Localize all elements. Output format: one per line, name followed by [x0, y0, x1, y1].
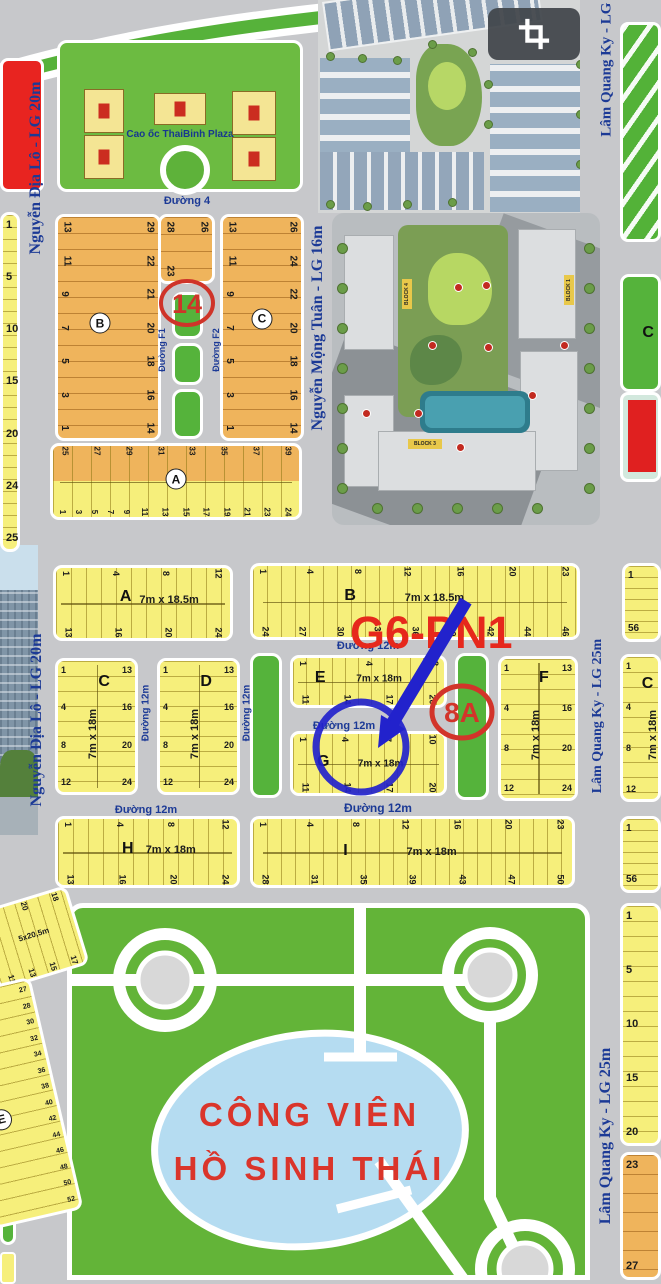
block-letter: C	[252, 308, 273, 329]
park-title-line1: CÔNG VIÊN	[127, 1096, 492, 1134]
lot-number: 20	[144, 322, 154, 333]
tree-icon	[337, 323, 348, 334]
block-letter: F	[539, 670, 549, 686]
tree-icon	[393, 56, 402, 65]
block-dims: 7m x 18m	[189, 709, 201, 759]
tree-icon	[584, 323, 595, 334]
lot-number: 36	[37, 1066, 46, 1075]
tree-icon	[428, 40, 437, 49]
block-g-row: 1471011141720G7m x 18m	[290, 731, 447, 796]
street-label-nguyen-mong-tuan: Nguyễn Mộng Tuân - LG 16m	[309, 226, 327, 431]
lot-number: 12	[626, 785, 636, 794]
lot-number: 22	[287, 288, 297, 299]
lot-number: 3	[74, 510, 82, 514]
lot-number: 1	[59, 425, 69, 431]
block-dims: 5x16,5m	[0, 1034, 1, 1067]
eco-park: CÔNG VIÊN HỒ SINH THÁI	[67, 903, 590, 1280]
lot-number: 4	[115, 822, 124, 827]
lot-number: 1	[504, 664, 509, 673]
lot-number: 13	[66, 874, 75, 884]
lot-number: 11	[300, 695, 309, 705]
tree-icon	[576, 160, 580, 169]
lot-number: 5	[224, 358, 234, 364]
lot-number: 7	[224, 325, 234, 331]
lot-number: 22	[144, 255, 154, 266]
lot-number: 18	[144, 355, 154, 366]
lot-number: 5	[59, 358, 69, 364]
lot-number: 44	[52, 1131, 61, 1140]
lot-number: 27	[298, 626, 307, 636]
map-marker-icon	[482, 281, 491, 290]
lot-number: 48	[59, 1163, 68, 1172]
lot-number: 33	[188, 447, 196, 456]
lot-number: 8	[351, 822, 360, 827]
block-rb-yellow: 15101520	[620, 903, 661, 1146]
street-label-duong-4: Đường 4	[164, 195, 210, 207]
lot-number: 10	[6, 324, 18, 335]
lot-number: 8	[504, 744, 509, 753]
tree-icon	[337, 483, 348, 494]
lot-number: 43	[457, 874, 466, 884]
lot-number: 4	[111, 571, 120, 576]
lot-number: 31	[310, 874, 319, 884]
block-b-upper-ext: 282326	[158, 214, 215, 284]
lot-number: 8	[163, 741, 168, 750]
lot-number: 32	[30, 1034, 39, 1043]
map-marker-icon	[428, 341, 437, 350]
lot-number: 20	[163, 627, 172, 637]
map-marker-icon	[362, 409, 371, 418]
lot-number: 10	[427, 734, 436, 744]
block-tag: BLOCK 4	[402, 279, 412, 309]
lot-number: 20	[427, 782, 436, 792]
plaza-building	[232, 137, 276, 181]
tree-icon	[326, 200, 335, 209]
lot-number: 12	[163, 778, 173, 787]
plaza-roundabout	[160, 145, 210, 195]
map-marker-icon	[414, 409, 423, 418]
tree-icon	[358, 54, 367, 63]
lot-number: 16	[122, 703, 132, 712]
block-letter: C	[642, 676, 654, 692]
lot-number: 12	[403, 566, 412, 576]
lot-number: 4	[504, 704, 509, 713]
aerial-photo-villas	[318, 0, 580, 213]
lot-number: 17	[385, 694, 394, 704]
lot-number: 16	[113, 627, 122, 637]
lot-number: 20	[626, 1127, 638, 1138]
tree-icon	[326, 52, 335, 61]
tree-icon	[403, 200, 412, 209]
tree-icon	[363, 202, 372, 211]
lot-number: 24	[213, 627, 222, 637]
lot-number: 3	[59, 392, 69, 398]
pale-block-red-building	[620, 392, 661, 482]
block-letter: A	[120, 589, 132, 605]
lot-number: 27	[18, 986, 27, 995]
lot-number: 16	[562, 704, 572, 713]
lot-number: 35	[220, 447, 228, 456]
tree-icon	[452, 503, 463, 514]
lot-number: 16	[452, 819, 461, 829]
block-letter: C	[642, 325, 654, 341]
lot-number: 24	[6, 481, 18, 492]
block-i-row: 1481216202328313539434750I7m x 18m	[250, 816, 575, 888]
green-block-chevron	[620, 22, 661, 242]
lot-number: 16	[287, 389, 297, 400]
tree-icon	[337, 243, 348, 254]
lot-number: 15	[181, 508, 189, 517]
lot-number: 40	[44, 1099, 53, 1108]
plaza-building	[232, 91, 276, 135]
apartment-building	[344, 235, 394, 350]
lot-number: 20	[224, 741, 234, 750]
block-dims: 7m x 18m	[530, 710, 542, 760]
lot-number: 14	[342, 782, 351, 792]
lot-number: 23	[263, 508, 271, 517]
lot-number: 50	[555, 874, 564, 884]
lot-number: 50	[63, 1179, 72, 1188]
lot-number: 14	[144, 422, 154, 433]
lot-number: 12	[504, 784, 514, 793]
lot-number: 13	[62, 221, 72, 232]
lot-number: 23	[626, 1160, 638, 1171]
lot-number: 37	[252, 447, 260, 456]
block-dims: 7m x 18m	[146, 844, 196, 856]
lot-number: 4	[305, 569, 314, 574]
lot-number: 13	[227, 221, 237, 232]
lot-number: 18	[49, 891, 59, 902]
lot-number: 13	[122, 666, 132, 675]
block-c-right: 14812C7m x 18m	[620, 654, 661, 802]
lot-number: 38	[41, 1082, 50, 1091]
block-f-row: 1481213162024F7m x 18m	[498, 656, 578, 801]
lot-number: 25	[60, 447, 68, 456]
block-dims: 5x20,5m	[17, 926, 50, 944]
street-label-nguyen-dia-lo-upper: Nguyễn Địa Lô - LG 20m	[27, 82, 45, 255]
lot-number: 12	[220, 819, 229, 829]
lot-number: 1	[6, 220, 12, 231]
lot-number: 20	[122, 741, 132, 750]
lot-number: 1	[626, 662, 631, 671]
street-label-lam-quang-ky-top: Lâm Quang Ky - LG 2	[599, 0, 616, 137]
lot-number: 16	[144, 389, 154, 400]
tree-icon	[372, 503, 383, 514]
lot-number: 5	[6, 272, 12, 283]
green-median	[172, 292, 203, 339]
street-label-lam-quang-ky-bottom: Lâm Quang Ky - LG 25m	[597, 1048, 615, 1224]
lot-number: 29	[124, 447, 132, 456]
tree-icon	[532, 503, 543, 514]
lot-number: 20	[18, 901, 28, 912]
lot-number: 4	[340, 737, 349, 742]
block-letter: B	[344, 588, 356, 604]
lot-number: 4	[163, 703, 168, 712]
lot-number: 24	[122, 778, 132, 787]
block-letter: H	[122, 841, 134, 857]
block-letter: E	[0, 1107, 14, 1132]
tree-icon	[584, 243, 595, 254]
park-plan	[72, 908, 585, 1275]
lot-number: 7	[383, 737, 392, 742]
lot-number: 8	[353, 569, 362, 574]
lot-number: 9	[224, 291, 234, 297]
tree-icon	[412, 503, 423, 514]
lot-number: 17	[69, 955, 79, 966]
lot-number: 39	[283, 447, 291, 456]
lot-number: 15	[48, 961, 58, 972]
lot-number: 1	[163, 666, 168, 675]
lot-number: 29	[144, 221, 154, 232]
map-marker-icon	[454, 283, 463, 292]
lot-number: 13	[27, 967, 37, 978]
block-dims: 7m x 18m	[356, 674, 402, 685]
lot-number: 30	[335, 626, 344, 636]
lot-number: 8	[61, 741, 66, 750]
crop-overlay[interactable]	[488, 8, 580, 60]
lot-number: 8	[626, 744, 631, 753]
tree-icon	[576, 110, 580, 119]
plaza-building	[84, 135, 124, 179]
tree-icon	[584, 443, 595, 454]
green-strip	[455, 653, 489, 800]
block-letter: D	[200, 674, 212, 690]
street-label-duong-f1: Đường F1	[157, 328, 167, 371]
lot-number: 1	[628, 571, 634, 581]
tree-icon	[492, 503, 503, 514]
block-r-lower: 156	[620, 816, 661, 893]
map-marker-icon	[456, 443, 465, 452]
lot-number: 14	[342, 694, 351, 704]
aerial-photo-apartment: BLOCK 4 BLOCK 1 BLOCK 3	[332, 213, 600, 525]
park-title-line2: HỒ SINH THÁI	[127, 1150, 492, 1188]
tree-icon	[576, 60, 580, 69]
lot-number: 20	[169, 874, 178, 884]
lot-number: 24	[562, 784, 572, 793]
lot-number: 28	[261, 874, 270, 884]
lot-number: 11	[300, 783, 309, 793]
lot-number: 8	[430, 661, 439, 666]
lot-number: 20	[504, 819, 513, 829]
tree-icon	[337, 363, 348, 374]
lot-number: 24	[261, 626, 270, 636]
street-label-duong-12m-v1: Đường 12m	[141, 685, 152, 742]
plaza-building	[84, 89, 124, 133]
lot-number: 24	[224, 778, 234, 787]
lot-number: 1	[258, 569, 267, 574]
map-marker-icon	[528, 391, 537, 400]
lot-number: 23	[555, 819, 564, 829]
lot-number: 1	[61, 666, 66, 675]
thaibinh-plaza-block: Cao ốc ThaiBinh Plaza	[57, 40, 303, 192]
crop-icon	[517, 17, 551, 51]
lot-number: 23	[165, 265, 175, 276]
apartment-building	[378, 431, 536, 491]
lot-number: 4	[364, 661, 373, 666]
lot-number: 4	[61, 703, 66, 712]
tree-icon	[584, 283, 595, 294]
lot-number: 24	[220, 874, 229, 884]
tree-icon	[337, 443, 348, 454]
lot-number: 12	[61, 778, 71, 787]
lot-number: 7	[59, 325, 69, 331]
green-strip	[250, 653, 282, 798]
villa-row	[320, 152, 484, 210]
lot-number: 1	[58, 510, 66, 514]
lot-number: 21	[144, 288, 154, 299]
lot-number: 7	[106, 510, 114, 514]
lot-number: 16	[224, 703, 234, 712]
lot-number: 10	[626, 1019, 638, 1030]
green-median	[172, 389, 203, 439]
street-label-duong-12m-i: Đường 12m	[344, 801, 412, 815]
lot-number: 1	[63, 822, 72, 827]
tree-icon	[468, 48, 477, 57]
lot-number: 1	[626, 911, 632, 922]
lot-number: 30	[26, 1018, 35, 1027]
street-label-duong-f2: Đường F2	[211, 328, 221, 371]
block-letter: E	[315, 670, 326, 686]
annotation-code: G6-PN1	[350, 610, 513, 655]
tree-icon	[584, 403, 595, 414]
block-letter: G	[317, 754, 329, 770]
lot-number: 4	[305, 822, 314, 827]
lot-number: 42	[48, 1115, 57, 1124]
lot-number: 9	[122, 510, 130, 514]
lot-number: 47	[506, 874, 515, 884]
lot-number: 15	[626, 1073, 638, 1084]
lot-number: 26	[198, 221, 208, 232]
lot-number: 46	[560, 626, 569, 636]
villa-grid	[490, 64, 580, 212]
block-right-green: C	[620, 274, 661, 392]
lot-number: 18	[287, 355, 297, 366]
lot-number: 20	[562, 744, 572, 753]
lot-number: 44	[523, 626, 532, 636]
lot-number: 9	[59, 291, 69, 297]
lot-number: 11	[226, 255, 236, 266]
lot-number: 25	[6, 533, 18, 544]
lot-number: 16	[117, 874, 126, 884]
lot-number: 20	[508, 566, 517, 576]
lot-number: 11	[140, 508, 148, 516]
block-tag: BLOCK 3	[408, 439, 442, 449]
lot-number: 20	[427, 694, 436, 704]
lot-number: 1	[224, 425, 234, 431]
lot-number: 15	[6, 376, 18, 387]
lot-number: 5	[90, 510, 98, 514]
lot-number: 12	[213, 568, 222, 578]
lot-number: 1	[626, 824, 632, 834]
block-a-strip: 2527293133353739135791113151719212324A	[50, 443, 302, 520]
lot-number: 27	[92, 447, 100, 456]
lot-number: 1	[298, 737, 307, 742]
map-marker-icon	[560, 341, 569, 350]
master-plan-map[interactable]: Cao ốc ThaiBinh Plaza BLOCK 4	[0, 0, 661, 1280]
plaza-building	[154, 93, 206, 125]
block-a-mid: 1481213162024A7m x 18.5m	[53, 565, 233, 641]
lot-number: 31	[156, 447, 164, 456]
lot-number: 8	[161, 571, 170, 576]
block-e-row: 14811141720E7m x 18m	[290, 655, 447, 708]
tree-icon	[584, 363, 595, 374]
block-h-row: 1481213162024H7m x 18m	[55, 816, 240, 888]
lot-number: 3	[224, 392, 234, 398]
apartment-pool	[420, 391, 530, 433]
block-tag: BLOCK 1	[564, 275, 574, 305]
lot-number: 17	[385, 782, 394, 792]
lot-number: 56	[626, 875, 637, 885]
block-dims: 7m x 18.5m	[139, 594, 198, 606]
lot-number: 11	[61, 255, 71, 266]
lot-number: 34	[33, 1050, 42, 1059]
tree-icon	[337, 403, 348, 414]
lot-number: 16	[455, 566, 464, 576]
block-letter: B	[90, 313, 111, 334]
green-median	[172, 343, 203, 385]
block-letter: C	[98, 674, 110, 690]
block-b-upper: 13119753129222120181614B	[55, 214, 161, 441]
lot-number: 20	[6, 429, 18, 440]
lot-number: 28	[22, 1002, 31, 1011]
lot-number: 27	[626, 1261, 638, 1272]
lot-number: 12	[400, 819, 409, 829]
lot-number: 23	[560, 566, 569, 576]
tree-icon	[484, 120, 493, 129]
villa-garden	[416, 44, 482, 146]
lot-number: 13	[562, 664, 572, 673]
block-letter: A	[166, 469, 187, 490]
lot-number: 46	[56, 1147, 65, 1156]
lot-number: 5	[626, 965, 632, 976]
street-label-duong-12m-eg: Đường 12m	[313, 720, 375, 732]
block-dims: 7m x 18m	[407, 846, 457, 858]
lot-number: 8	[166, 822, 175, 827]
tree-icon	[337, 283, 348, 294]
block-dims: 7m x 18.5m	[405, 592, 464, 604]
lot-number: 39	[408, 874, 417, 884]
lot-number: 14	[287, 422, 297, 433]
lot-number: 1	[61, 571, 70, 576]
block-r-mid: 156	[622, 563, 661, 642]
block-c-row: 1481213162024C7m x 18m	[55, 658, 138, 795]
lot-number: 21	[242, 508, 250, 517]
lot-number: 24	[283, 508, 291, 517]
tree-icon	[448, 198, 457, 207]
lot-number: 35	[359, 874, 368, 884]
lot-number: 52	[67, 1195, 76, 1204]
lot-number: 56	[628, 624, 639, 634]
block-letter: I	[343, 843, 347, 859]
lot-number: 24	[287, 255, 297, 266]
block-d-row: 1481213162024D7m x 18m	[157, 658, 240, 795]
block-dims: 7m x 18m	[647, 710, 659, 760]
street-label-lam-quang-ky-mid: Lâm Quang Ky - LG 25m	[590, 639, 606, 793]
lot-number: 28	[165, 221, 175, 232]
lot-number: 1	[258, 822, 267, 827]
yellow-s1iver	[0, 1252, 16, 1284]
street-label-duong-12m-v2: Đường 12m	[242, 685, 253, 742]
lot-number: 13	[161, 508, 169, 517]
lot-number: 19	[222, 508, 230, 517]
block-left-strip-upper: 151015202425	[0, 212, 20, 552]
apartment-garden	[398, 225, 508, 417]
lot-number: 26	[287, 221, 297, 232]
tree-icon	[584, 483, 595, 494]
block-c-upper: 13119753126242220181614C	[220, 214, 304, 441]
street-label-nguyen-dia-lo-lower: Nguyễn Địa Lô - LG 20m	[28, 634, 46, 807]
street-label-duong-12m-h: Đường 12m	[115, 804, 177, 816]
